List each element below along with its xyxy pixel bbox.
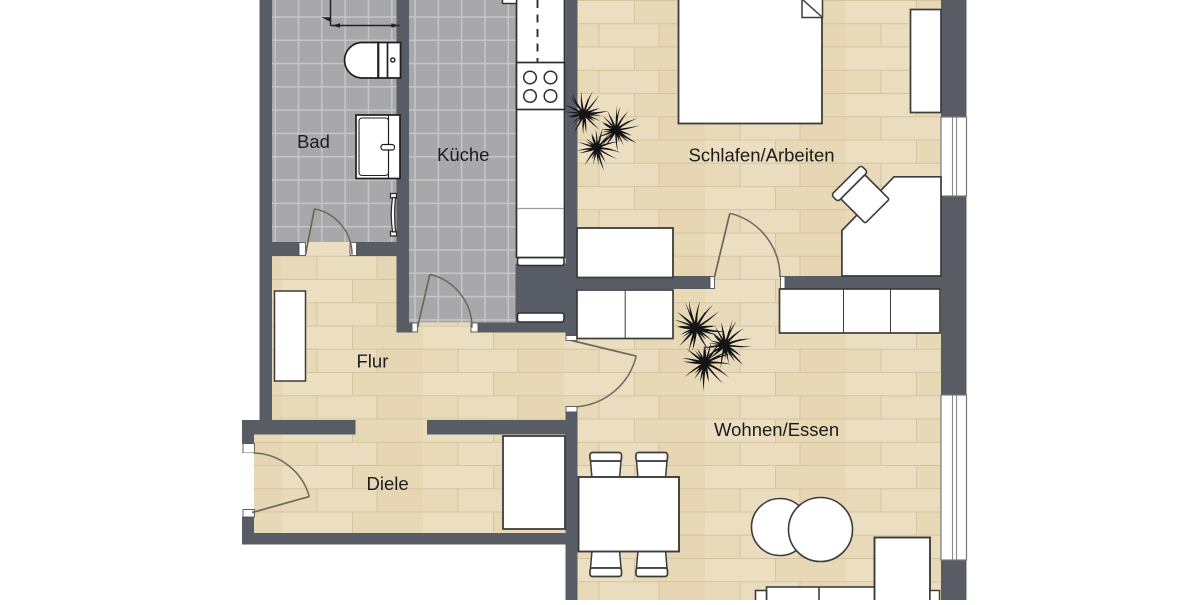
svg-text:Küche: Küche	[437, 144, 489, 165]
svg-text:Wohnen/Essen: Wohnen/Essen	[714, 419, 839, 440]
svg-text:Bad: Bad	[297, 131, 330, 152]
svg-text:Flur: Flur	[357, 351, 389, 372]
svg-text:Diele: Diele	[367, 473, 409, 494]
svg-text:Schlafen/Arbeiten: Schlafen/Arbeiten	[689, 145, 835, 166]
